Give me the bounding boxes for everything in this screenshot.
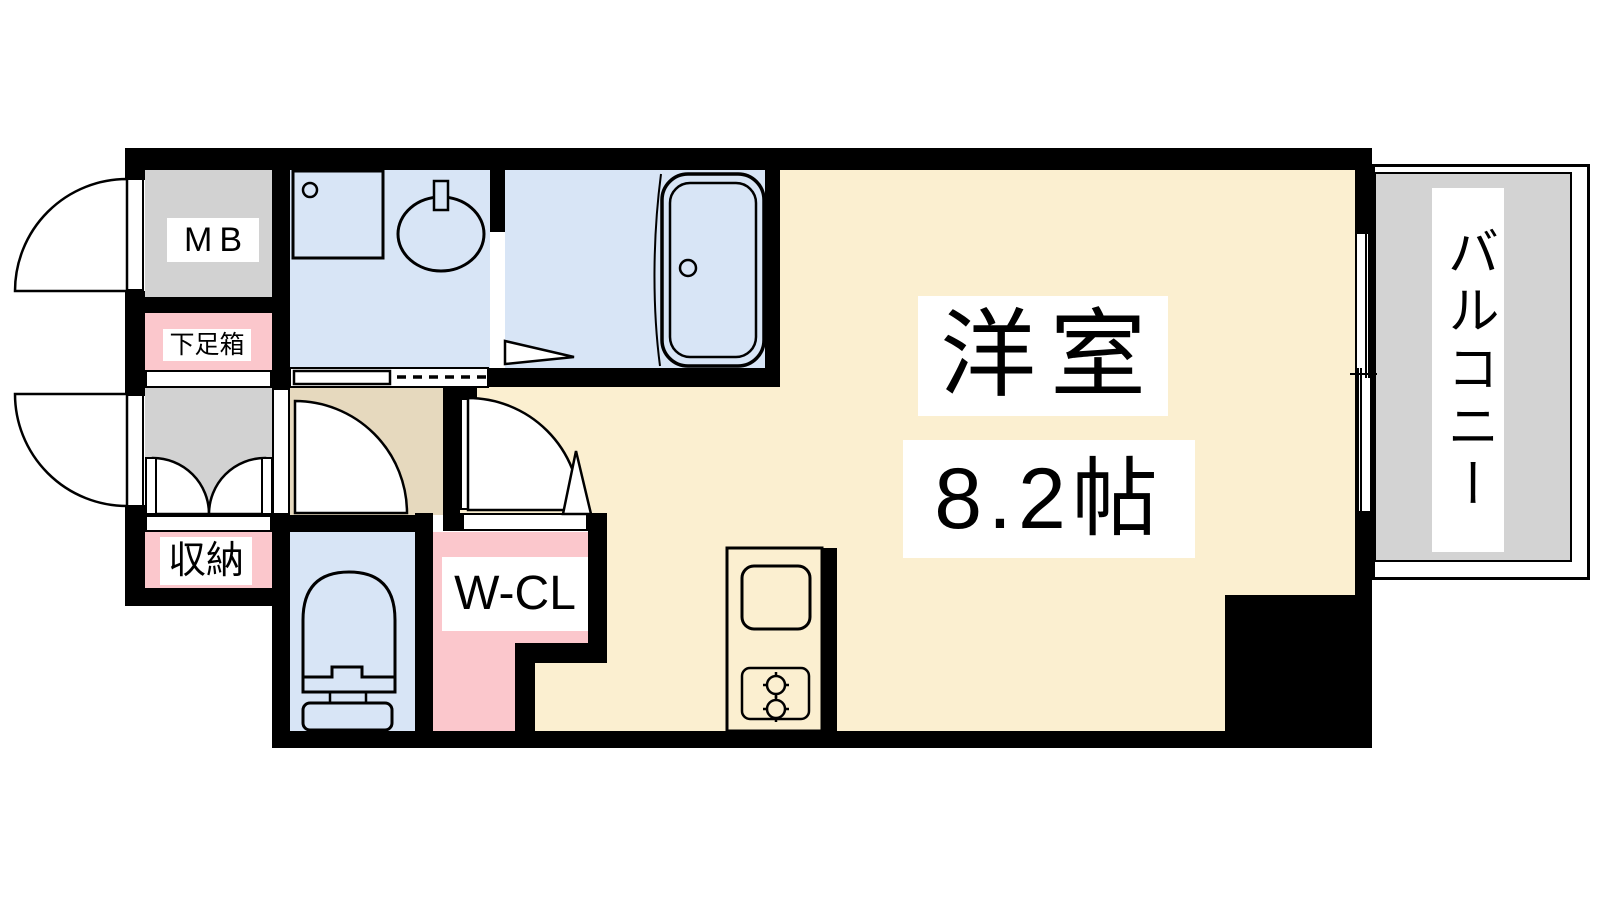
mb-door-swing-arc bbox=[15, 179, 127, 291]
double-door-panel-right bbox=[262, 458, 272, 514]
bathtub-inner bbox=[670, 183, 756, 357]
label-meter-box: MB bbox=[167, 218, 259, 262]
label-balcony: バルコニー bbox=[1432, 188, 1504, 552]
sliding-door-panel bbox=[294, 371, 390, 384]
label-main-room-size: 8.2帖 bbox=[903, 440, 1195, 558]
label-main-room-name: 洋室 bbox=[918, 296, 1168, 416]
toilet-tank bbox=[303, 667, 395, 692]
main-door-swing-arc bbox=[468, 398, 580, 510]
toilet-connector bbox=[330, 692, 366, 703]
double-door-panel-left bbox=[146, 458, 156, 514]
entrance-door-swing-arc bbox=[15, 394, 127, 506]
double-door-swing-arc-right bbox=[209, 458, 265, 514]
label-storage: 収納 bbox=[160, 537, 252, 585]
bathtub-icon bbox=[662, 174, 764, 366]
sliding-window-sashes bbox=[1350, 234, 1377, 511]
kitchen-sink-icon bbox=[742, 566, 810, 629]
label-walk-in-closet: W-CL bbox=[442, 557, 588, 631]
symbols-layer bbox=[0, 0, 1600, 900]
toilet-base bbox=[303, 703, 392, 730]
bathroom-door-direction-triangle bbox=[505, 341, 574, 364]
stove-burner-icon bbox=[763, 672, 789, 722]
label-shoe-box: 下足箱 bbox=[163, 329, 251, 361]
floor-plan: MB 下足箱 収納 W-CL 洋室 8.2帖 バルコニー bbox=[0, 0, 1600, 900]
toilet-icon bbox=[303, 572, 395, 677]
double-door-swing-arc-left bbox=[153, 458, 209, 514]
hall-door-swing-arc bbox=[295, 401, 407, 513]
bathtub-drain bbox=[680, 260, 696, 276]
washing-machine-drain bbox=[303, 183, 317, 197]
washbasin-tap bbox=[434, 181, 448, 210]
bathtub-apron-curve bbox=[654, 174, 661, 366]
